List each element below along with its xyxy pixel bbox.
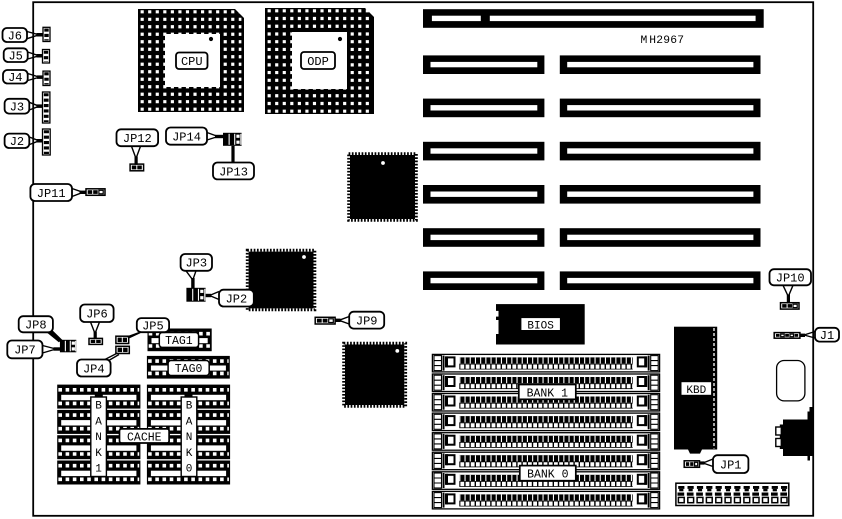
svg-text:JP8: JP8 bbox=[25, 319, 47, 333]
svg-text:N: N bbox=[186, 432, 193, 444]
svg-text:BANK 1: BANK 1 bbox=[527, 387, 569, 400]
svg-text:J4: J4 bbox=[8, 71, 22, 85]
svg-text:B: B bbox=[95, 401, 102, 413]
svg-text:BIOS: BIOS bbox=[527, 320, 554, 332]
svg-text:JP2: JP2 bbox=[226, 292, 248, 306]
svg-text:J2: J2 bbox=[10, 135, 24, 149]
svg-text:JP9: JP9 bbox=[356, 315, 378, 329]
svg-text:MH2967: MH2967 bbox=[641, 35, 685, 47]
svg-text:TAG1: TAG1 bbox=[165, 335, 193, 348]
svg-text:1: 1 bbox=[95, 464, 102, 476]
svg-text:JP10: JP10 bbox=[776, 272, 805, 286]
svg-text:JP7: JP7 bbox=[14, 344, 36, 358]
svg-text:A: A bbox=[95, 416, 102, 428]
svg-text:K: K bbox=[186, 448, 193, 460]
svg-text:A: A bbox=[186, 416, 193, 428]
svg-text:J3: J3 bbox=[10, 101, 24, 115]
svg-text:JP5: JP5 bbox=[142, 320, 164, 334]
svg-text:J6: J6 bbox=[8, 29, 22, 43]
svg-text:0: 0 bbox=[186, 464, 193, 476]
svg-text:J1: J1 bbox=[820, 329, 834, 343]
svg-text:JP6: JP6 bbox=[86, 308, 108, 322]
svg-text:JP14: JP14 bbox=[172, 130, 201, 144]
svg-text:JP3: JP3 bbox=[185, 257, 207, 271]
svg-text:TAG0: TAG0 bbox=[175, 363, 203, 376]
svg-text:J5: J5 bbox=[8, 50, 22, 64]
svg-text:CACHE: CACHE bbox=[127, 431, 162, 444]
svg-text:B: B bbox=[186, 401, 193, 413]
svg-text:JP12: JP12 bbox=[123, 132, 152, 146]
svg-text:KBD: KBD bbox=[686, 385, 706, 397]
svg-text:JP4: JP4 bbox=[83, 362, 105, 376]
svg-text:JP13: JP13 bbox=[219, 165, 248, 179]
svg-text:JP1: JP1 bbox=[720, 458, 742, 472]
svg-text:BANK 0: BANK 0 bbox=[527, 469, 569, 482]
svg-text:CPU: CPU bbox=[181, 55, 203, 69]
svg-text:JP11: JP11 bbox=[37, 187, 66, 201]
svg-text:N: N bbox=[95, 432, 102, 444]
svg-text:K: K bbox=[95, 448, 102, 460]
svg-text:ODP: ODP bbox=[307, 55, 329, 69]
